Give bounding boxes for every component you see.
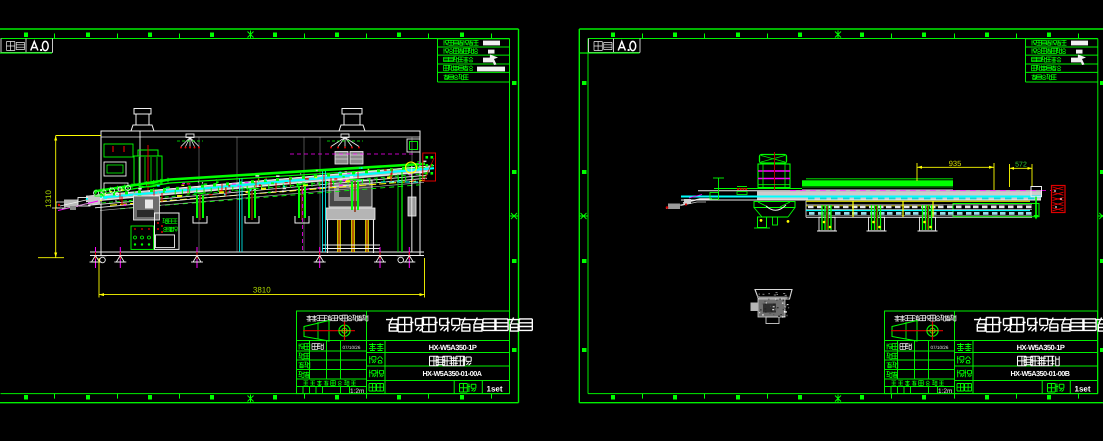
svg-text:HX-W5A350-1P: HX-W5A350-1P [1017, 343, 1065, 352]
svg-text:1set: 1set [1075, 385, 1091, 394]
svg-text:3810: 3810 [253, 285, 271, 294]
svg-text:1310: 1310 [44, 190, 53, 208]
svg-text:07/10/26: 07/10/26 [931, 345, 949, 350]
svg-text:1set: 1set [487, 385, 503, 394]
svg-text:07/10/26: 07/10/26 [343, 345, 361, 350]
svg-text:HX-W5A350-01-00A: HX-W5A350-01-00A [422, 369, 481, 378]
svg-text:935: 935 [949, 159, 962, 168]
svg-text:HX-W5A350-01-00B: HX-W5A350-01-00B [1010, 369, 1069, 378]
svg-text:1:2m: 1:2m [938, 388, 952, 395]
svg-text:HX-W5A350-1P: HX-W5A350-1P [429, 343, 477, 352]
svg-text:1:2m: 1:2m [350, 388, 364, 395]
svg-text:572: 572 [1015, 162, 1027, 169]
